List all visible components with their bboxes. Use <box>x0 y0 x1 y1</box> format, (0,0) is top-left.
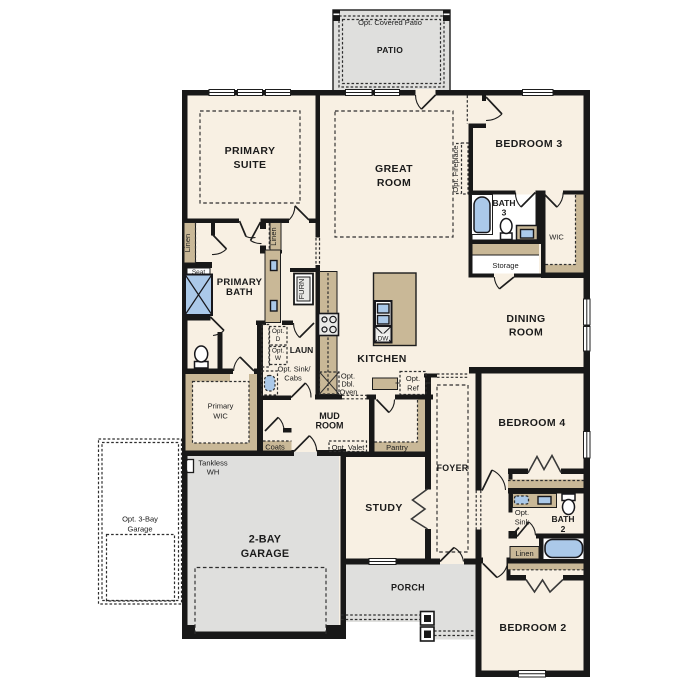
svg-text:D: D <box>276 336 281 343</box>
svg-text:Storage: Storage <box>492 261 518 270</box>
svg-text:BEDROOM 3: BEDROOM 3 <box>495 138 562 150</box>
svg-text:Opt. Covered Patio: Opt. Covered Patio <box>358 18 422 27</box>
svg-text:Cabs: Cabs <box>284 374 302 383</box>
svg-text:2: 2 <box>561 524 566 534</box>
svg-text:3: 3 <box>502 208 507 218</box>
svg-text:WIC: WIC <box>549 233 564 242</box>
svg-text:PATIO: PATIO <box>377 45 403 55</box>
svg-text:Ref: Ref <box>407 384 420 393</box>
svg-text:BATH: BATH <box>552 514 575 524</box>
svg-text:FOYER: FOYER <box>437 463 469 473</box>
svg-text:SUITE: SUITE <box>234 159 267 171</box>
svg-text:GREAT: GREAT <box>375 163 413 175</box>
svg-text:DINING: DINING <box>506 313 545 325</box>
svg-text:Garage: Garage <box>127 525 152 534</box>
svg-text:BATH: BATH <box>493 198 516 208</box>
svg-text:ROOM: ROOM <box>316 421 344 431</box>
svg-text:WH: WH <box>207 468 220 477</box>
svg-text:Sink: Sink <box>515 518 530 527</box>
svg-text:DW: DW <box>378 336 390 343</box>
svg-text:Coats: Coats <box>265 443 285 452</box>
svg-text:Oven: Oven <box>340 388 358 397</box>
svg-text:KITCHEN: KITCHEN <box>357 353 406 365</box>
svg-text:ROOM: ROOM <box>377 177 411 189</box>
svg-text:Opt.: Opt. <box>406 374 420 383</box>
svg-text:Pantry: Pantry <box>386 443 408 452</box>
svg-text:Seat: Seat <box>192 269 206 276</box>
svg-text:BEDROOM 4: BEDROOM 4 <box>498 417 565 429</box>
svg-text:Opt. Sink/: Opt. Sink/ <box>278 365 312 374</box>
svg-text:PRIMARY: PRIMARY <box>225 145 276 157</box>
svg-text:W: W <box>275 355 282 362</box>
svg-text:STUDY: STUDY <box>365 502 403 514</box>
svg-text:Opt. 3-Bay: Opt. 3-Bay <box>122 515 158 524</box>
svg-text:BEDROOM 2: BEDROOM 2 <box>499 622 566 634</box>
svg-text:Tankless: Tankless <box>198 459 227 468</box>
svg-text:Opt. Fireplace: Opt. Fireplace <box>451 145 460 192</box>
svg-text:FURN: FURN <box>297 279 306 300</box>
svg-text:LAUN: LAUN <box>290 345 314 355</box>
svg-text:Opt.: Opt. <box>515 508 529 517</box>
svg-text:Opt. Valet: Opt. Valet <box>332 443 366 452</box>
svg-text:Linen: Linen <box>183 234 192 252</box>
svg-text:Linen: Linen <box>515 549 533 558</box>
svg-text:MUD: MUD <box>319 411 340 421</box>
svg-text:WIC: WIC <box>213 412 228 421</box>
svg-text:Opt.: Opt. <box>272 328 284 335</box>
svg-text:ROOM: ROOM <box>509 327 543 339</box>
svg-text:2-BAY: 2-BAY <box>249 534 282 546</box>
svg-text:Linen: Linen <box>269 227 278 245</box>
svg-text:PORCH: PORCH <box>391 583 425 593</box>
svg-text:Primary: Primary <box>208 402 234 411</box>
svg-text:GARAGE: GARAGE <box>241 548 290 560</box>
svg-text:BATH: BATH <box>226 287 253 298</box>
svg-text:Opt.: Opt. <box>272 348 284 355</box>
